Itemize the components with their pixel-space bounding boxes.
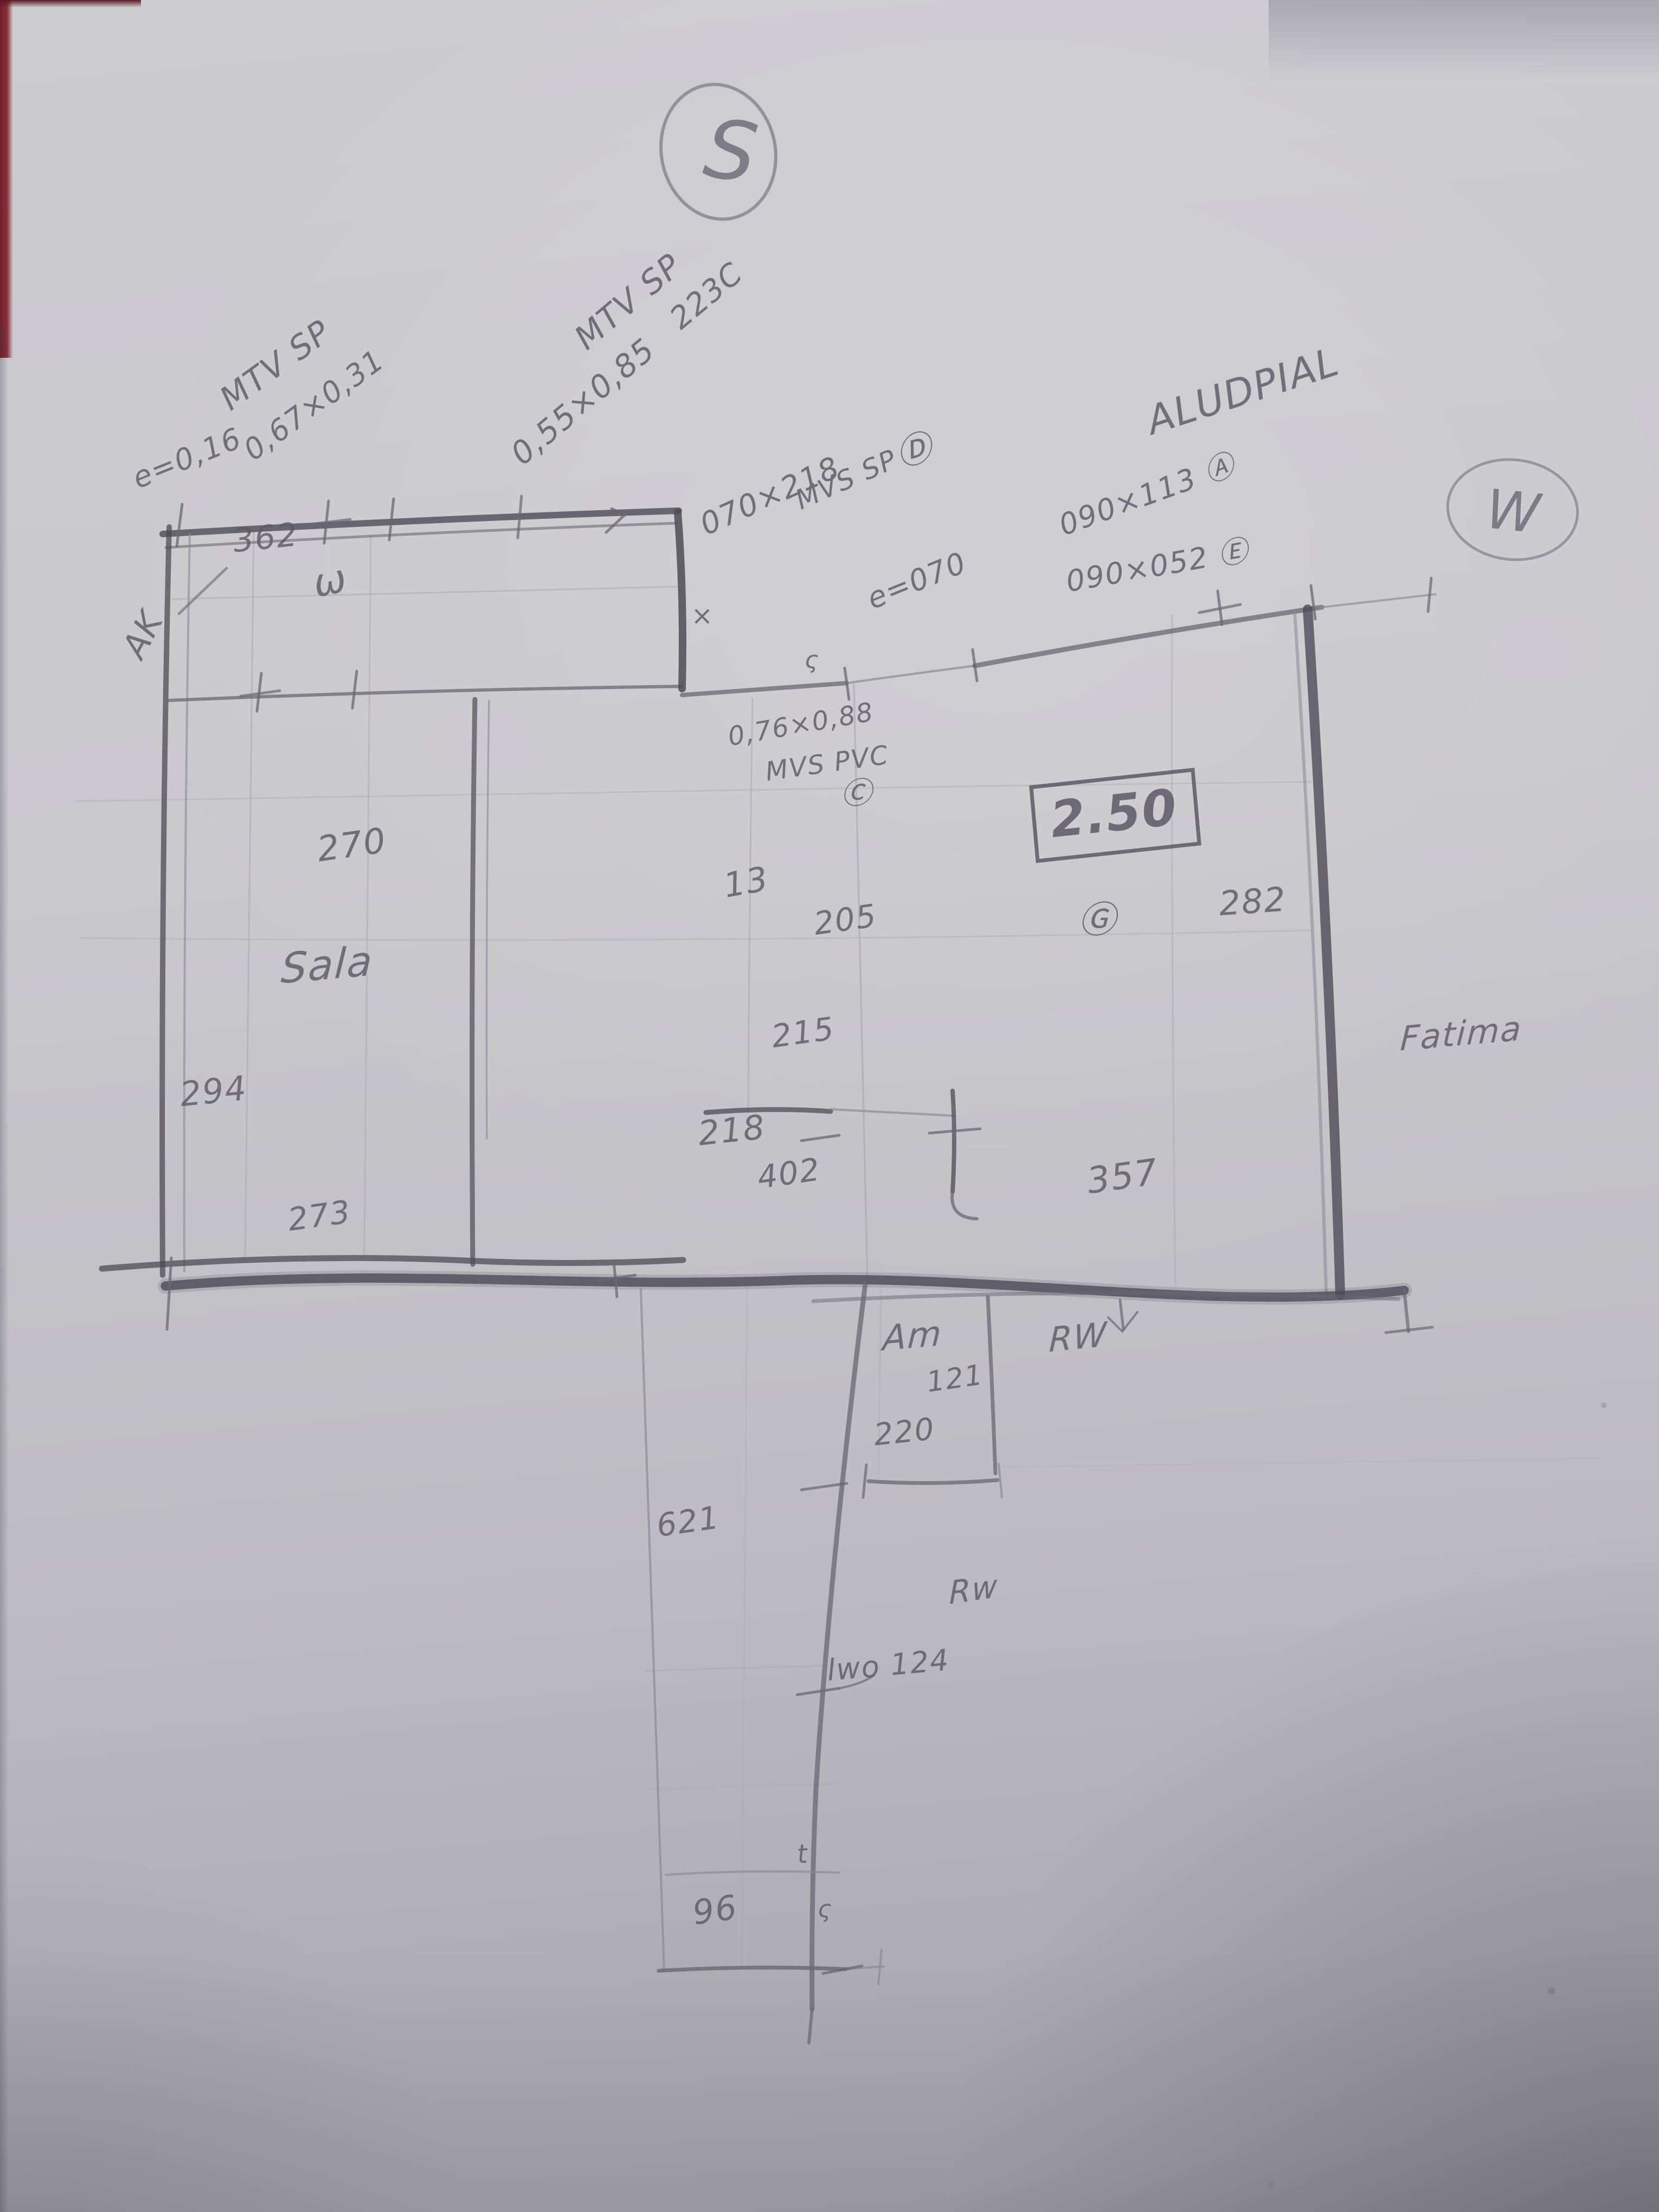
tick-mark — [797, 1688, 839, 1695]
label-window-e: 090×052 Ⓔ — [1064, 532, 1254, 599]
crease-line — [81, 930, 1312, 940]
wall-strip-right — [678, 512, 683, 689]
wall-mid-top — [682, 683, 847, 695]
grid-line — [245, 532, 254, 1259]
label-wall-note: e=070 — [862, 545, 971, 616]
wall-left — [162, 527, 169, 1275]
grid-line — [646, 1666, 836, 1671]
dim-am-width: 220 — [872, 1411, 937, 1452]
tick-mark — [863, 1465, 866, 1497]
dim-sala-bottom: 273 — [286, 1193, 353, 1238]
wall-am-bottom — [869, 1480, 998, 1483]
wall-bottom-upper — [102, 1258, 683, 1269]
dim-sala-height: 294 — [178, 1068, 249, 1115]
label-neighbor: Fatima — [1399, 1008, 1523, 1059]
crease-lines — [76, 782, 1599, 1467]
label-ak: AK — [113, 603, 171, 666]
tick-mark — [179, 568, 227, 614]
wall-am-right — [988, 1297, 995, 1474]
grid-line — [748, 698, 753, 1113]
wall-hall-left — [641, 1289, 664, 1971]
t-tick-mark: t — [796, 1838, 810, 1870]
wall-divider-sala — [472, 699, 475, 1264]
tick-mark — [352, 671, 357, 708]
omega-squiggle: ω — [309, 555, 351, 606]
compass-south-label: S — [699, 101, 764, 202]
crease-line — [1003, 1458, 1599, 1467]
wall-divider-end — [953, 1091, 954, 1192]
dim-gap-width: 402 — [755, 1150, 823, 1196]
dim-hall-width: 96 — [690, 1887, 740, 1933]
tick-mark — [801, 1135, 839, 1141]
dim-mid-top: 13 — [721, 859, 771, 905]
grid-line — [742, 1288, 747, 1969]
dim-extension-right — [1322, 594, 1436, 607]
wall-right-top — [975, 607, 1322, 666]
dim-line-402 — [831, 1109, 954, 1116]
label-tag-g: Ⓖ — [1078, 899, 1120, 942]
label-rw-lower: Rw — [949, 1567, 999, 1611]
ceiling-height-value: 2.50 — [1047, 778, 1180, 849]
tick-mark — [518, 496, 522, 538]
label-window-size: 0,55×0,85 — [504, 331, 663, 472]
wall-divider-sala-echo — [487, 700, 490, 1139]
dim-hall-height: 621 — [654, 1499, 722, 1544]
dim-ext-357 — [1120, 1300, 1123, 1329]
speck — [1601, 1403, 1606, 1408]
wall-strip-bottom — [168, 686, 682, 700]
dim-am-height: 121 — [924, 1359, 986, 1399]
label-alu-type: ALUDPIAL — [1139, 338, 1345, 444]
floor-plan-sketch: S W 2.50 MTV SP e=0,16 0,67×0,31 MTV SP … — [0, 0, 1659, 2212]
tick-mark — [1428, 578, 1431, 612]
paper-specks — [1268, 1403, 1606, 2188]
tick-mark — [614, 1261, 617, 1297]
room-label-am: Am — [879, 1313, 943, 1359]
s-tick-mark: ς — [805, 646, 820, 674]
dim-mid-bottom: 218 — [696, 1107, 767, 1154]
compass-west-label: W — [1483, 477, 1545, 546]
tick-mark — [177, 504, 182, 546]
wall-hall-right-tail — [809, 2009, 812, 2043]
label-pvc-tag: Ⓒ — [841, 776, 876, 811]
dim-mid-height: 215 — [769, 1009, 837, 1055]
grid-line — [364, 536, 371, 1256]
dim-right-bottom: 357 — [1084, 1150, 1161, 1202]
wall-left-echo — [184, 534, 190, 1271]
label-rw-upper: RW — [1049, 1314, 1109, 1360]
dim-mid-width: 205 — [812, 897, 879, 942]
dim-right-width: 282 — [1218, 879, 1288, 923]
hook-divider-end — [952, 1192, 977, 1219]
label-thickness: e=0,16 — [128, 421, 247, 495]
label-window-a: 090×113 Ⓐ — [1054, 446, 1242, 542]
room-label-sala: Sala — [280, 937, 375, 993]
annotations: MTV SP e=0,16 0,67×0,31 MTV SP 0,55×0,85… — [113, 246, 1523, 1932]
photographed-sketch-page: { "photo": { "compass": { "south_label":… — [0, 0, 1659, 2212]
speck — [1548, 1987, 1555, 1995]
wall-hall-bottom — [659, 1967, 846, 1971]
label-door-type: MVS SP — [790, 443, 902, 516]
s-tick-mark-2: ς — [818, 1895, 833, 1923]
dim-sala-width: 270 — [314, 821, 389, 870]
tick-mark — [167, 1258, 171, 1329]
dim-top-width: 362 — [231, 516, 300, 560]
label-note-124: lwo 124 — [826, 1643, 951, 1687]
speck — [1268, 2182, 1275, 2188]
wall-mid-window-span — [847, 666, 975, 683]
grid-line — [1172, 615, 1175, 1286]
construction-grid — [172, 532, 1175, 1969]
x-tick-mark: × — [691, 601, 714, 631]
grid-line — [172, 587, 677, 599]
